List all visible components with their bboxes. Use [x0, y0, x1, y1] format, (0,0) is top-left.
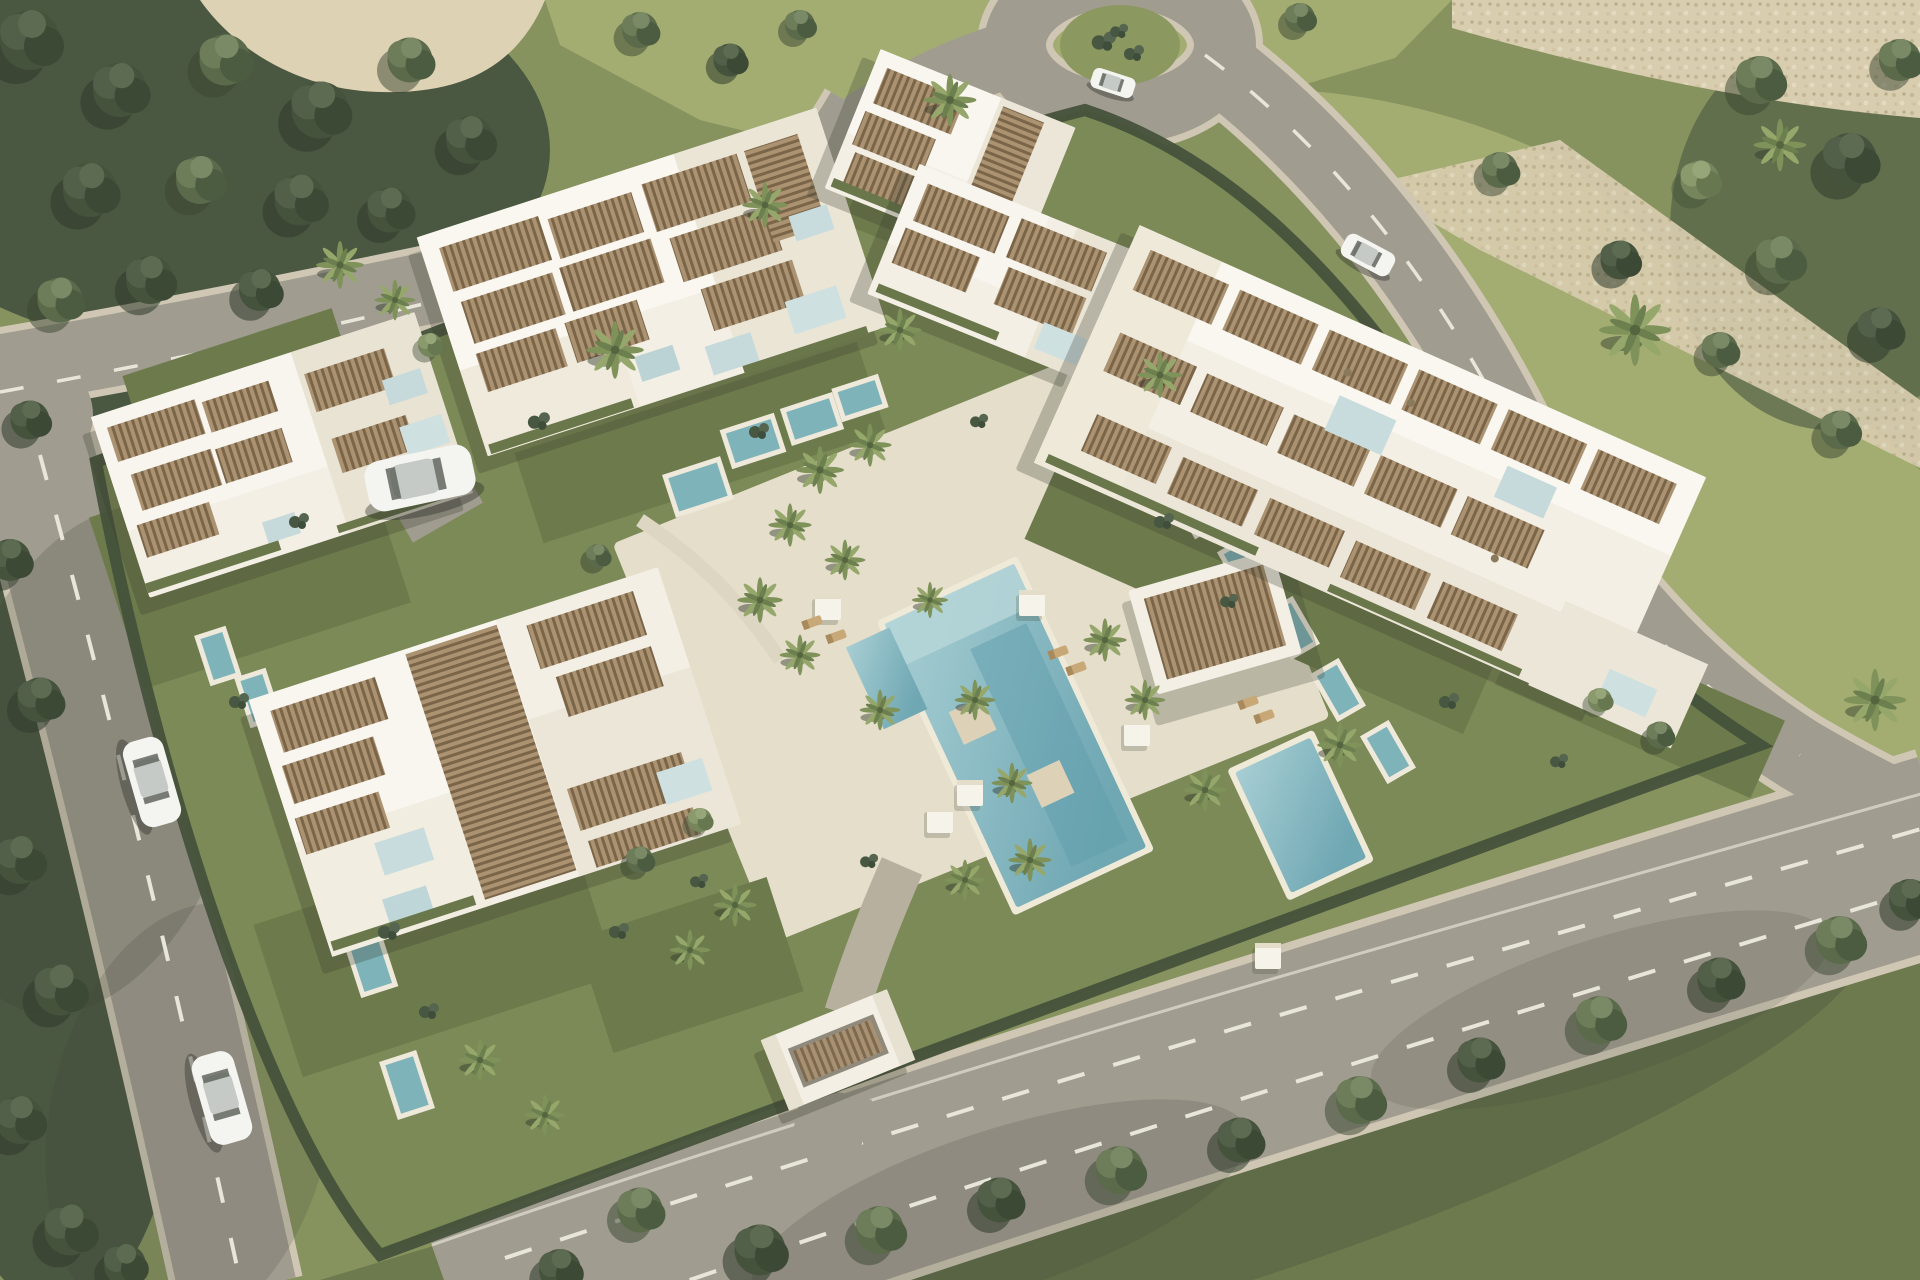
render-canvas [0, 0, 1920, 1280]
cabana [1252, 943, 1281, 974]
palm-tree [1754, 119, 1807, 172]
palm-tree [912, 582, 948, 618]
palm-tree [768, 503, 811, 546]
palm-tree [525, 1095, 566, 1136]
palm-tree [742, 182, 788, 228]
cabana [1016, 590, 1045, 621]
palm-tree [848, 423, 891, 466]
palm-tree [586, 321, 644, 379]
palm-tree [1125, 680, 1166, 721]
palm-tree [1137, 352, 1183, 398]
palm-tree [458, 1038, 501, 1081]
palm-tree [1844, 669, 1906, 731]
cabana [924, 807, 953, 838]
palm-tree [878, 308, 921, 351]
palm-tree [737, 577, 783, 623]
palm-tree [860, 690, 901, 731]
aerial-render [0, 0, 1920, 1280]
palm-tree [1183, 768, 1226, 811]
palm-tree [713, 883, 756, 926]
cul-de-sac-island [1060, 5, 1180, 85]
palm-tree [375, 280, 416, 321]
palm-tree [825, 540, 866, 581]
palm-tree [796, 446, 844, 494]
cabana [1121, 720, 1150, 751]
cabana [954, 780, 983, 811]
palm-tree [1317, 722, 1363, 768]
palm-tree [780, 635, 821, 676]
palm-tree [945, 860, 986, 901]
palm-tree [1083, 618, 1126, 661]
palm-tree [924, 74, 977, 127]
palm-tree [955, 680, 996, 721]
palm-tree [316, 241, 364, 289]
palm-tree [992, 763, 1033, 804]
palm-tree [670, 930, 711, 971]
palm-tree [1599, 294, 1671, 366]
palm-tree [1008, 838, 1051, 881]
